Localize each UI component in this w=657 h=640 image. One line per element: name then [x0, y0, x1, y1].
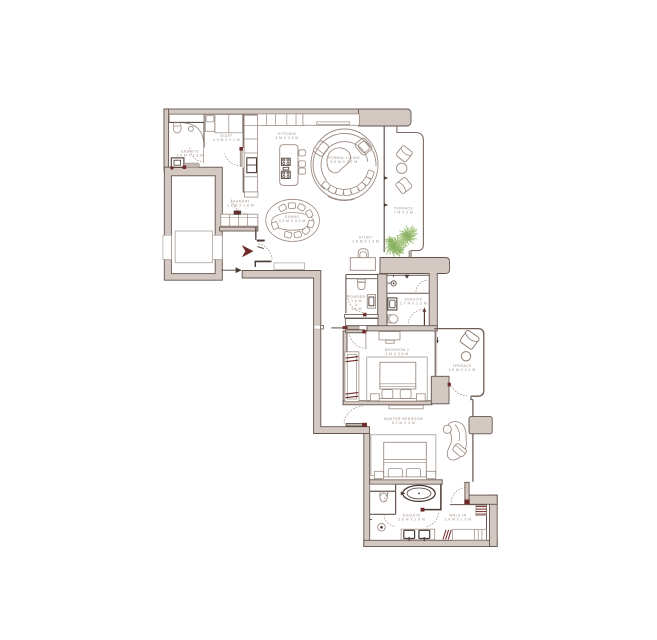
svg-text:7 M X 2 M: 7 M X 2 M — [394, 211, 414, 215]
svg-text:2.6 M X 1.9 M: 2.6 M X 1.9 M — [398, 517, 425, 521]
svg-text:5.2 M X 4 M: 5.2 M X 4 M — [392, 421, 415, 425]
svg-text:1.6 M X 1.8 M: 1.6 M X 1.8 M — [227, 203, 254, 207]
svg-text:2.4 M X 1.9 M: 2.4 M X 1.9 M — [445, 517, 472, 521]
svg-text:1.6 M: 1.6 M — [351, 307, 362, 311]
svg-text:4 M X 3.6 M: 4 M X 3.6 M — [385, 352, 408, 356]
svg-text:1.8 M X 1.3 M: 1.8 M X 1.3 M — [352, 239, 379, 243]
svg-text:3.8 M X 2.4 M: 3.8 M X 2.4 M — [449, 368, 476, 372]
svg-text:2.0 M X 1.8 M: 2.0 M X 1.8 M — [177, 153, 204, 157]
svg-text:5.9 M X 4.9 M: 5.9 M X 4.9 M — [331, 160, 358, 164]
svg-text:4 M X 2.9 M: 4 M X 2.9 M — [275, 136, 298, 140]
svg-text:4.2 M X 3.2 M: 4.2 M X 3.2 M — [279, 219, 306, 223]
svg-text:2.0 M X 2.1 M: 2.0 M X 2.1 M — [213, 138, 240, 142]
svg-text:2.7 M X 2.2 M: 2.7 M X 2.2 M — [400, 301, 427, 305]
